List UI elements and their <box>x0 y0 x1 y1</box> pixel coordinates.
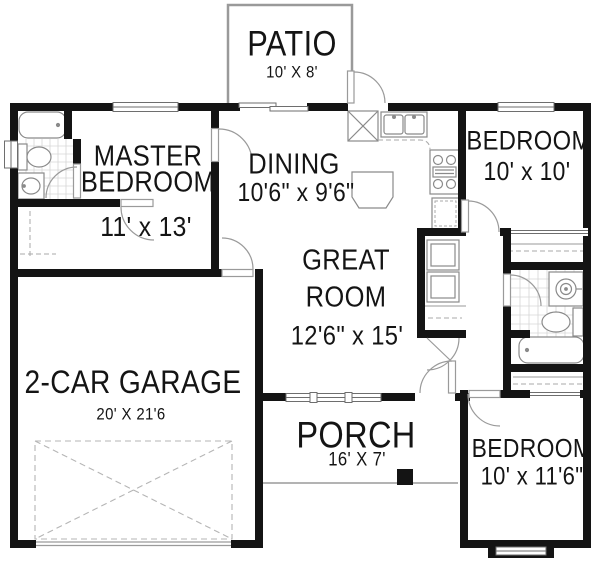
porch-post <box>397 469 413 485</box>
garage-door <box>36 542 231 546</box>
kitchen-sink-faucet-left <box>393 116 396 119</box>
dining-dims: 10'6" x 9'6" <box>238 179 355 205</box>
bedroom-top-door <box>462 200 500 232</box>
bedroom-bottom-door <box>468 391 500 427</box>
master-toilet-tank <box>18 144 27 170</box>
master-bedroom-window <box>113 103 178 112</box>
master-closet-shelf-dashed <box>20 211 56 256</box>
great-room-dims: 12'6" x 15' <box>291 323 404 350</box>
dining-label: DINING <box>248 151 339 180</box>
patio-sliding-door <box>239 103 308 111</box>
bedroom-top-label: BEDROOM <box>466 128 591 155</box>
master-sink-faucet <box>23 185 26 188</box>
kitchen-counter-edge-dashed <box>378 140 430 150</box>
garage-dims: 20' X 21'6 <box>96 406 165 423</box>
garage-label: 2-CAR GARAGE <box>24 366 241 398</box>
master-bedroom-door <box>212 129 253 163</box>
dryer-lid <box>431 276 455 298</box>
great-room-window <box>286 393 381 403</box>
dining-table <box>352 172 393 208</box>
master-bath-door <box>46 164 81 198</box>
porch-dims: 16' X 7' <box>328 451 386 470</box>
garage-parking-area <box>35 441 232 539</box>
stove-control-panel <box>433 167 456 177</box>
patio-label: PATIO <box>247 27 337 62</box>
great-room-label-line1: GREAT <box>302 247 390 276</box>
kitchen-base-cabinet <box>432 198 459 229</box>
bedroom-bottom-closet-opening <box>530 390 580 398</box>
front-door <box>420 361 456 393</box>
garage-entry-door <box>222 238 253 277</box>
kitchen-sink-faucet-right <box>413 116 416 119</box>
hall-bath-toilet-bowl <box>542 312 570 332</box>
master-bedroom-dims: 11' x 13' <box>100 213 192 241</box>
master-bathtub-drain <box>57 124 60 127</box>
master-toilet-bowl <box>27 147 51 167</box>
floor-plan: PATIO 10' X 8' MASTER BEDROOM 11' x 13' … <box>0 0 600 563</box>
master-bath-window <box>5 141 18 168</box>
patio-dims: 10' X 8' <box>266 64 318 81</box>
great-room-label-line2: ROOM <box>306 284 387 313</box>
washer-lid <box>431 244 455 266</box>
hall-bath-sink-faucet <box>565 288 568 291</box>
bedroom-top-dims: 10' x 10' <box>484 158 571 184</box>
master-bedroom-label-line2: BEDROOM <box>81 169 215 198</box>
patio-door <box>348 71 386 103</box>
hall-bath-toilet-tank <box>573 308 583 336</box>
bedroom-bottom-label: BEDROOM <box>472 435 593 461</box>
hall-bathtub-drain <box>526 349 529 352</box>
bedroom-bottom-dims: 10' x 11'6" <box>481 465 584 490</box>
bedroom-bottom-window <box>496 547 546 555</box>
bedroom-top-window <box>498 103 554 112</box>
bedroom-top-closet-opening <box>511 228 588 236</box>
porch-label: PORCH <box>296 417 415 454</box>
